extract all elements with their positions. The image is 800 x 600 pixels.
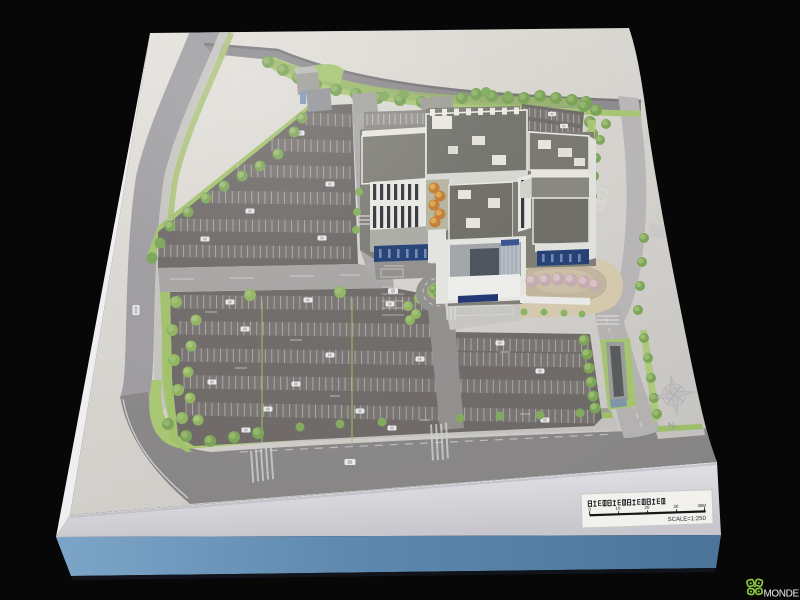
svg-text:40M: 40M: [697, 503, 706, 508]
svg-text:10: 10: [615, 506, 621, 511]
svg-text:MONDE: MONDE: [764, 589, 800, 600]
svg-text:30: 30: [673, 504, 679, 509]
svg-text:20: 20: [644, 505, 650, 510]
